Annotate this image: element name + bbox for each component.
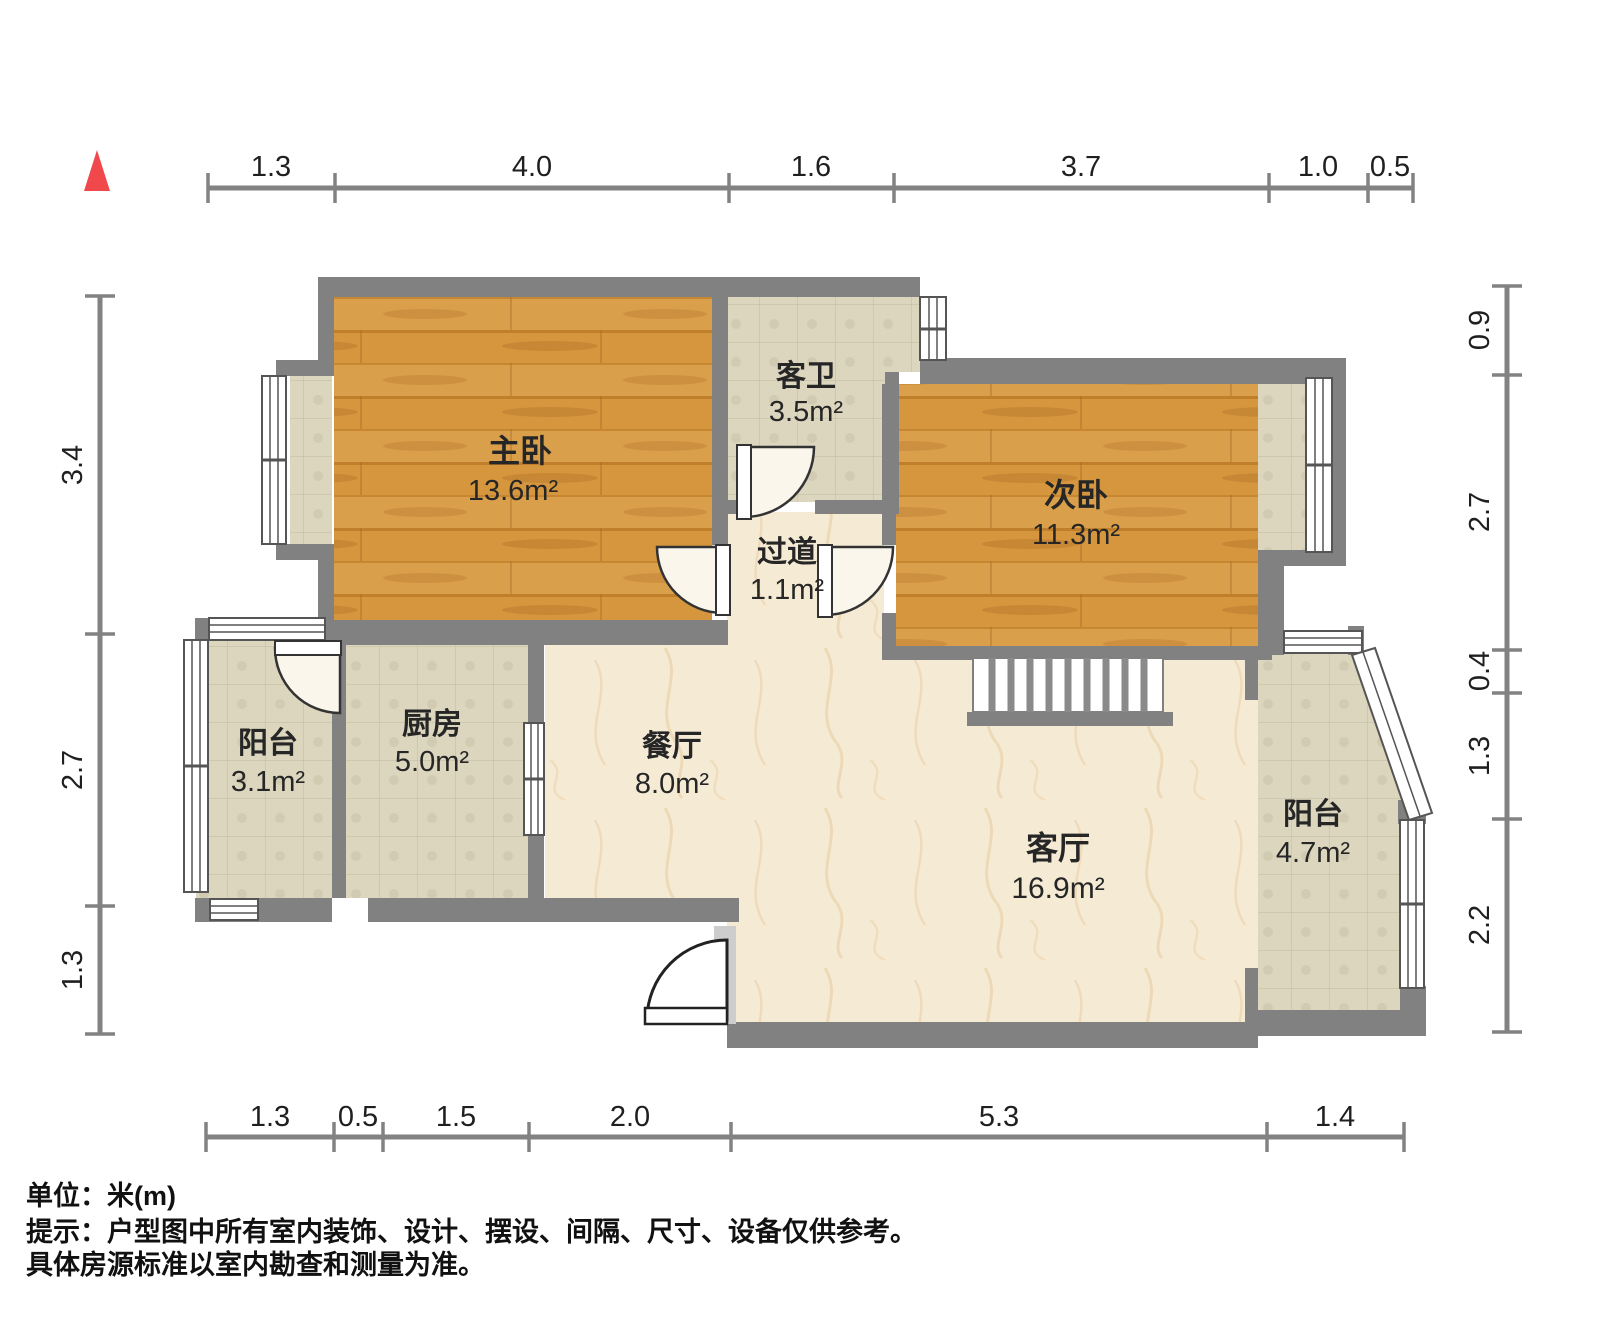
room-label-living-room-area: 16.9m² xyxy=(1011,872,1104,905)
dim-label-top: 1.6 xyxy=(791,151,831,183)
footer-notes: 单位：米(m) 提示：户型图中所有室内装饰、设计、摆设、间隔、尺寸、设备仅供参考… xyxy=(26,1180,917,1280)
wall xyxy=(920,358,1346,384)
room-label-hallway-area: 1.1m² xyxy=(750,574,824,606)
room-label-balcony-left-name: 阳台 xyxy=(238,726,298,760)
wall xyxy=(1245,968,1258,1024)
wall xyxy=(1400,986,1426,1014)
room-label-balcony-right-area: 4.7m² xyxy=(1276,837,1350,869)
dim-label-bottom: 1.3 xyxy=(250,1101,290,1133)
staircase xyxy=(967,658,1173,726)
wall xyxy=(1258,560,1284,655)
dim-label-bottom: 0.5 xyxy=(338,1101,378,1133)
dim-label-top: 0.5 xyxy=(1370,151,1410,183)
room-label-master-bedroom-name: 主卧 xyxy=(488,433,552,469)
window-second-bedroom-bay xyxy=(1306,378,1332,552)
door-entry xyxy=(645,940,727,1024)
room-label-dining-room-area: 8.0m² xyxy=(635,768,709,800)
dim-label-bottom: 1.5 xyxy=(436,1101,476,1133)
dim-label-right: 1.3 xyxy=(1464,736,1496,776)
room-label-second-bedroom-area: 11.3m² xyxy=(1032,519,1120,551)
wall xyxy=(528,645,544,725)
wall xyxy=(528,835,544,902)
wall xyxy=(712,297,728,545)
window-balcony-right-top xyxy=(1284,631,1362,653)
room-label-kitchen-area: 5.0m² xyxy=(395,746,469,778)
wall xyxy=(318,620,728,645)
room-label-kitchen-name: 厨房 xyxy=(402,708,462,741)
room-label-guest-bathroom-name: 客卫 xyxy=(776,359,836,393)
dim-label-right: 2.2 xyxy=(1464,905,1496,945)
window-balcony-left-bottom xyxy=(210,899,258,920)
window-balcony-right-side xyxy=(1400,820,1424,988)
disclaimer-line-1: 提示：户型图中所有室内装饰、设计、摆设、间隔、尺寸、设备仅供参考。 xyxy=(26,1216,917,1247)
floor-plan-drawing: 主卧 13.6m² 客卫 3.5m² 过道 1.1m² 次卧 11.3m² 厨房… xyxy=(0,0,1608,1327)
dim-label-bottom: 1.4 xyxy=(1315,1101,1355,1133)
floor-second-bedroom-bay xyxy=(1258,384,1308,550)
window-balcony-left-top xyxy=(209,618,325,640)
room-label-living-room-name: 客厅 xyxy=(1026,830,1090,866)
disclaimer-line-2: 具体房源标准以室内勘查和测量为准。 xyxy=(26,1249,485,1280)
unit-note: 单位：米(m) xyxy=(26,1180,176,1211)
dim-label-left: 3.4 xyxy=(57,445,89,485)
window-bathroom-bay xyxy=(920,297,946,360)
dim-label-left: 2.7 xyxy=(57,750,89,790)
wall xyxy=(545,898,739,922)
dim-label-right: 2.7 xyxy=(1464,492,1496,532)
wall xyxy=(727,1022,1258,1048)
room-label-master-bedroom-area: 13.6m² xyxy=(468,475,559,507)
window-master-bay xyxy=(262,376,286,544)
wall xyxy=(276,360,334,376)
room-label-second-bedroom-name: 次卧 xyxy=(1044,477,1108,513)
floor-master-bay xyxy=(290,376,332,544)
wall xyxy=(1333,370,1346,566)
window-balcony-left-side xyxy=(184,640,208,892)
dim-label-bottom: 2.0 xyxy=(610,1101,650,1133)
dim-label-right: 0.4 xyxy=(1464,651,1496,691)
wall xyxy=(1245,653,1258,700)
room-label-dining-room-name: 餐厅 xyxy=(642,730,702,763)
window-kitchen-pass xyxy=(524,723,544,835)
wall xyxy=(368,898,545,922)
floor-bathroom-bay xyxy=(885,297,922,372)
dim-label-right: 0.9 xyxy=(1464,310,1496,350)
dim-label-bottom: 5.3 xyxy=(979,1101,1019,1133)
room-label-balcony-right-name: 阳台 xyxy=(1283,797,1343,831)
dim-label-top: 1.3 xyxy=(251,151,291,183)
room-label-hallway-name: 过道 xyxy=(757,536,817,569)
floor-plan-page: 主卧 13.6m² 客卫 3.5m² 过道 1.1m² 次卧 11.3m² 厨房… xyxy=(0,0,1608,1327)
wall xyxy=(318,277,920,297)
dim-label-top: 3.7 xyxy=(1061,151,1101,183)
room-label-guest-bathroom-area: 3.5m² xyxy=(769,396,843,428)
room-label-balcony-left-area: 3.1m² xyxy=(231,766,305,798)
wall xyxy=(882,384,896,545)
north-arrow-icon xyxy=(84,150,110,191)
dim-label-top: 4.0 xyxy=(512,151,552,183)
door-guest-bathroom xyxy=(737,445,814,519)
dim-label-top: 1.0 xyxy=(1298,151,1338,183)
floor-second-bedroom xyxy=(896,384,1258,646)
dim-label-left: 1.3 xyxy=(57,950,89,990)
